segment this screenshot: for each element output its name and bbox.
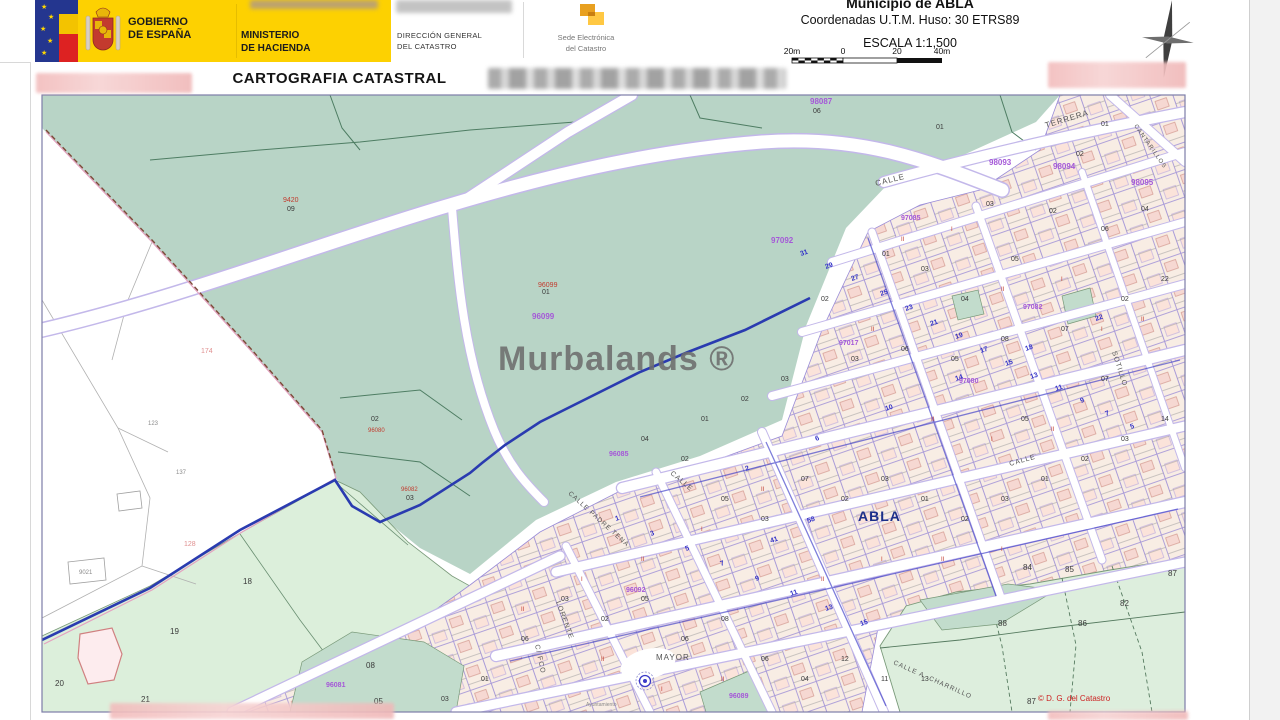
map-label: 96089 — [729, 693, 749, 700]
map-label: 05 — [641, 596, 649, 603]
map-label: 137 — [176, 470, 187, 476]
map-label: 03 — [406, 495, 414, 502]
map-label: 03 — [561, 596, 569, 603]
direccion-general-label: DIRECCIÓN GENERAL DEL CATASTRO — [397, 30, 482, 53]
map-label: 97082 — [1023, 304, 1043, 311]
map-label: 04 — [961, 296, 969, 303]
scale-bar: 20m 0 20 40m — [778, 46, 968, 70]
scale-tick-label: 0 — [841, 46, 846, 56]
map-label: II — [941, 557, 945, 563]
town-name-label: ABLA — [858, 508, 901, 524]
map-label: 84 — [1023, 563, 1032, 572]
map-label: 19 — [170, 627, 179, 636]
map-label: 85 — [1065, 565, 1074, 574]
map-label: 87 — [1168, 569, 1177, 578]
map-label: 04 — [801, 676, 809, 683]
map-label: 14 — [1161, 416, 1169, 423]
building-outline — [78, 628, 122, 684]
map-label: 97092 — [771, 236, 794, 245]
scale-tick-label: 20m — [784, 46, 801, 56]
map-label: 07 — [1101, 376, 1109, 383]
redacted-reference — [488, 68, 786, 89]
map-label: 05 — [1021, 416, 1029, 423]
map-label: II — [901, 237, 905, 243]
map-label: 04 — [1141, 206, 1149, 213]
map-label: 20 — [55, 679, 64, 688]
map-label: 82 — [1120, 599, 1129, 608]
redacted-text — [396, 0, 512, 13]
map-label: 97085 — [901, 215, 921, 222]
redacted-pink-bar — [110, 703, 394, 719]
map-label: 87 — [1027, 697, 1036, 706]
map-label: 02 — [1121, 296, 1129, 303]
government-logo-block: ★ ★ ★ ★ ★ GOBIERNO DE ESPAÑA MINISTERIO — [35, 0, 391, 62]
map-label: 02 — [841, 496, 849, 503]
map-label: 05 — [951, 356, 959, 363]
map-label: 174 — [201, 348, 213, 355]
map-label: 02 — [741, 396, 749, 403]
page-gutter — [1249, 0, 1280, 720]
scale-tick-label: 20 — [892, 46, 902, 56]
map-label: 123 — [148, 421, 159, 427]
header-divider — [523, 2, 524, 58]
map-label: II — [641, 557, 645, 563]
map-label: 02 — [1076, 151, 1084, 158]
map-label: 03 — [986, 201, 994, 208]
municipality-title: Municipio de ABLA — [760, 0, 1060, 13]
map-label: 96080 — [368, 428, 385, 434]
sede-electronica-icon — [572, 2, 612, 37]
map-label: 97017 — [839, 340, 859, 347]
map-label: II — [931, 417, 935, 423]
spain-eu-flag-icon: ★ ★ ★ ★ ★ — [35, 0, 78, 62]
redacted-pink-bar — [1048, 711, 1188, 720]
map-label: 08 — [1001, 336, 1009, 343]
map-label: 01 — [882, 251, 890, 258]
map-label: 05 — [1011, 256, 1019, 263]
map-label: 86 — [1078, 619, 1087, 628]
map-label: 01 — [542, 289, 550, 296]
map-label: II — [1001, 287, 1005, 293]
map-label: 01 — [481, 676, 489, 683]
map-label: 96081 — [326, 682, 346, 689]
map-label: II — [721, 677, 725, 683]
page-edge-line — [0, 62, 30, 63]
map-label: 01 — [1101, 121, 1109, 128]
map-label: 08 — [366, 661, 375, 670]
map-label: 02 — [961, 516, 969, 523]
map-label: 06 — [681, 636, 689, 643]
watermark: Murbalands ® — [498, 340, 798, 379]
map-label: 98087 — [810, 97, 833, 106]
map-label: 06 — [813, 108, 821, 115]
map-label: 01 — [921, 496, 929, 503]
map-label: 06 — [1101, 226, 1109, 233]
map-label: 03 — [441, 696, 449, 703]
map-label: 03 — [761, 516, 769, 523]
map-label: 06 — [521, 636, 529, 643]
map-label: 04 — [641, 436, 649, 443]
map-label: 03 — [1121, 436, 1129, 443]
map-label: II — [821, 577, 825, 583]
map-label: 06 — [761, 656, 769, 663]
map-label: 22 — [1161, 276, 1169, 283]
cadastral-document: 9420099609901960990296080960820317412812… — [0, 0, 1280, 720]
redacted-pink-bar — [36, 73, 192, 93]
map-label: 9420 — [283, 197, 299, 204]
map-label: 128 — [184, 541, 196, 548]
map-label: 07 — [1061, 326, 1069, 333]
copyright-notice: © D. G. del Catastro — [1038, 694, 1110, 703]
map-label: II — [871, 327, 875, 333]
map-label: 03 — [851, 356, 859, 363]
map-label: 98095 — [1131, 178, 1154, 187]
rural-building — [117, 491, 142, 511]
sede-electronica-label: Sede Electrónica del Catastro — [538, 33, 634, 55]
map-label: 18 — [243, 577, 252, 586]
map-label: 02 — [821, 296, 829, 303]
map-label: 02 — [681, 456, 689, 463]
map-label: II — [1141, 317, 1145, 323]
map-label: 12 — [841, 656, 849, 663]
ministerio-title: MINISTERIO DE HACIENDA — [241, 0, 376, 62]
map-label: 11 — [881, 676, 888, 683]
redacted-text — [250, 0, 378, 9]
map-label: 03 — [1001, 496, 1009, 503]
gobierno-title: GOBIERNO DE ESPAÑA — [128, 0, 236, 62]
map-label: 02 — [601, 616, 609, 623]
map-label: II — [521, 607, 525, 613]
scale-tick-label: 40m — [934, 46, 951, 56]
map-label: 96092 — [626, 587, 646, 594]
map-label: 96082 — [401, 487, 418, 493]
redacted-pink-bar — [1048, 62, 1186, 88]
map-label: 01 — [1041, 476, 1049, 483]
map-label: 96099 — [532, 312, 555, 321]
map-label: 98093 — [989, 158, 1012, 167]
map-label: Ayuntamiento — [586, 702, 617, 708]
map-label: 03 — [881, 476, 889, 483]
document-title: CARTOGRAFIA CATASTRAL — [222, 70, 457, 87]
map-label: MAYOR — [656, 653, 690, 662]
map-label: II — [761, 487, 765, 493]
map-label: 03 — [921, 266, 929, 273]
map-label: II — [1051, 427, 1055, 433]
map-label: 01 — [936, 124, 944, 131]
map-label: 13 — [921, 676, 929, 683]
map-label: 98094 — [1053, 162, 1076, 171]
map-label: 02 — [371, 416, 379, 423]
logo-divider — [236, 4, 237, 58]
page-edge-line — [30, 62, 31, 720]
map-label: 06 — [901, 346, 909, 353]
map-label: 09 — [287, 206, 295, 213]
coat-of-arms-icon — [78, 0, 128, 62]
map-label: 96085 — [609, 451, 629, 458]
map-label: 88 — [998, 619, 1007, 628]
map-label: II — [601, 657, 605, 663]
map-label: 05 — [721, 496, 729, 503]
map-label: 08 — [721, 616, 729, 623]
map-label: 02 — [1081, 456, 1089, 463]
map-label: 02 — [1049, 208, 1057, 215]
map-label: 01 — [701, 416, 709, 423]
map-label: 07 — [801, 476, 809, 483]
map-label: 96099 — [538, 282, 558, 289]
utm-coordinates-label: Coordenadas U.T.M. Huso: 30 ETRS89 — [760, 13, 1060, 27]
map-label: 9021 — [79, 570, 93, 576]
